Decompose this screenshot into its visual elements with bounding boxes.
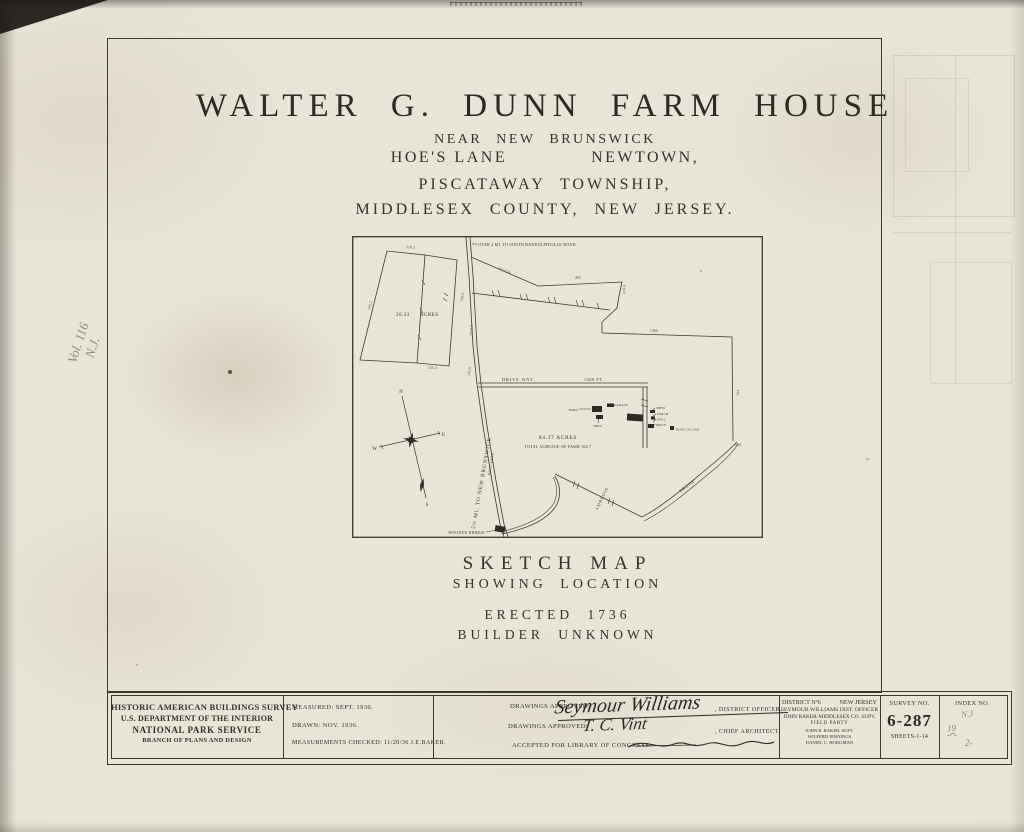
brook-ambrose-label: AMBROSE [594, 486, 610, 511]
compass-e: E [442, 433, 445, 438]
map-caption-sub: SHOWING LOCATION [352, 577, 763, 593]
dim-road-b: 1033.9 [469, 325, 474, 336]
driveway-length: 1300 FT. [584, 377, 604, 382]
index-pencil-note1: N.J [961, 708, 974, 719]
district-line5: JOHN B. BAKER, SUPT. [779, 728, 880, 733]
drawn-line: DRAWN: NOV. 1936. [292, 722, 358, 729]
dim-left: 702.2 [367, 300, 373, 310]
map-buildings [401, 404, 674, 533]
district-line4: FIELD PARTY [779, 721, 880, 726]
agency-line1: HISTORIC AMERICAN BUILDINGS SURVEY [111, 702, 283, 712]
dim-road-c: 145.6 [467, 367, 472, 376]
dim-diag: 1013.78 [498, 266, 512, 275]
map-road-note-top: OVER 4 MI. TO SOUTH RANDOLPHVILLE ROAD [478, 242, 576, 247]
survey-number: 6-287 [880, 711, 939, 731]
district-number: DISTRICT Nº6 [782, 699, 821, 706]
well-label: WELL [657, 418, 666, 422]
privy-label: PRIVY [656, 423, 667, 427]
dim-road-a: 708.8 [460, 293, 465, 302]
garage-label: GARAGE [614, 403, 628, 407]
subtitle-near: NEAR NEW BRUNSWICK [120, 132, 970, 148]
subtitle-lane-town: HOE'S LANE NEWTOWN, [120, 149, 970, 167]
subtitle-county: MIDDLESEX COUNTY, NEW JERSEY. [120, 201, 970, 219]
compass-s: S [426, 503, 429, 508]
agency-line4: BRANCH OF PLANS AND DESIGN [111, 737, 283, 744]
compass-n: N [399, 390, 403, 395]
scan-corner-shadow [0, 0, 108, 34]
root-cellar-label: ROOT CELLAR [676, 428, 700, 432]
district-state: NEW JERSEY [839, 699, 877, 706]
shed-label: SHED [593, 424, 602, 428]
checked-line: MEASUREMENTS CHECKED: 11/20/36 J.E.BAKER… [292, 740, 446, 746]
dim-east-short: 218.8 [622, 285, 626, 294]
district-officer-role: , DISTRICT OFFICER. [715, 706, 782, 713]
measured-line: MEASURED: SEPT. 1936. [292, 704, 373, 711]
index-pencil-note2: 19 [947, 723, 957, 734]
faint-stamp-mark [450, 2, 582, 6]
scanned-sheet: Vol. 116 N.J. WALTER G. DUNN FARM HOUSE … [0, 0, 1024, 832]
barn-label: BARN [569, 408, 579, 412]
bleed-through-line [893, 232, 1011, 233]
district-line7: DANIEL C. HODGMAN [779, 740, 880, 745]
dim-south-east: 704 [736, 390, 740, 396]
survey-cell: SURVEY NO. 6-287 SHEETS-1-14 [880, 695, 939, 757]
dim-top: 510.2 [406, 245, 415, 250]
index-cell: INDEX NO. N.J 19 2- [939, 695, 1006, 757]
parcel-acres-unit: ACRES [420, 313, 439, 318]
farm-acres: 84.37 ACRES [539, 435, 577, 441]
sketch-map: OVER 4 MI. TO SOUTH RANDOLPHVILLE ROAD 2… [352, 236, 763, 538]
agency-line2: U.S. DEPARTMENT OF THE INTERIOR [111, 714, 283, 723]
erected-line: ERECTED 1736 [352, 607, 763, 623]
signatures-cell: DRAWINGS APPROVED: Seymour Williams , DI… [433, 695, 779, 757]
subtitle-town: NEWTOWN, [591, 149, 699, 167]
brook-label: BROOK [678, 478, 696, 493]
road-name-label: 5½ MI. TO NEW BRUNSWICK [470, 436, 493, 529]
parcel-acres-value: 20.33 [396, 313, 410, 318]
dim-bottom: 151.3 [428, 366, 437, 370]
page-title: WALTER G. DUNN FARM HOUSE [120, 88, 970, 125]
map-caption-title: SKETCH MAP [352, 553, 763, 575]
dim-corner: 264 [735, 443, 741, 447]
drawings-approved-label-2: DRAWINGS APPROVED: [508, 723, 588, 730]
index-label: INDEX NO. [939, 700, 1006, 707]
driveway-label: DRIVE WAY [502, 377, 534, 382]
subtitle-township: PISCATAWAY TOWNSHIP, [120, 176, 970, 194]
index-pencil-note3: 2- [965, 738, 973, 748]
shed2-label: SHED [656, 406, 665, 410]
porch-label: PORCH [657, 412, 669, 416]
farm-total-acreage: TOTAL ACREAGE OF FARM 104.7 [525, 445, 592, 449]
survey-sheets: SHEETS-1-14 [880, 734, 939, 740]
district-line1: DISTRICT Nº6 NEW JERSEY [782, 699, 877, 706]
agency-line3: NATIONAL PARK SERVICE [111, 725, 283, 735]
accepted-signature-scribble [626, 733, 776, 755]
builder-line: BUILDER UNKNOWN [352, 627, 763, 643]
survey-label: SURVEY NO. [880, 700, 939, 707]
agency-cell: HISTORIC AMERICAN BUILDINGS SURVEY U.S. … [111, 695, 283, 757]
compass-w: W [372, 447, 377, 452]
wooden-bridge-label: WOODEN BRIDGE [448, 531, 485, 535]
subtitle-lane: HOE'S LANE [391, 149, 507, 167]
measured-cell: MEASURED: SEPT. 1936. DRAWN: NOV. 1936. … [283, 695, 433, 757]
district-line2: SEYMOUR WILLIAMS DIST. OFFICER [779, 707, 880, 713]
district-cell: DISTRICT Nº6 NEW JERSEY SEYMOUR WILLIAMS… [779, 695, 880, 757]
district-line3: JOHN BAKER-MIDDLESEX CO. SUPV. [779, 714, 880, 720]
sheet-heading: WALTER G. DUNN FARM HOUSE NEAR NEW BRUNS… [120, 88, 970, 219]
district-line6: WILFERD JENNINGS [779, 734, 880, 739]
bleed-through-drawing [930, 262, 1012, 384]
dim-east-long: 1366 [650, 329, 658, 333]
dim-north: 495 [575, 276, 581, 280]
